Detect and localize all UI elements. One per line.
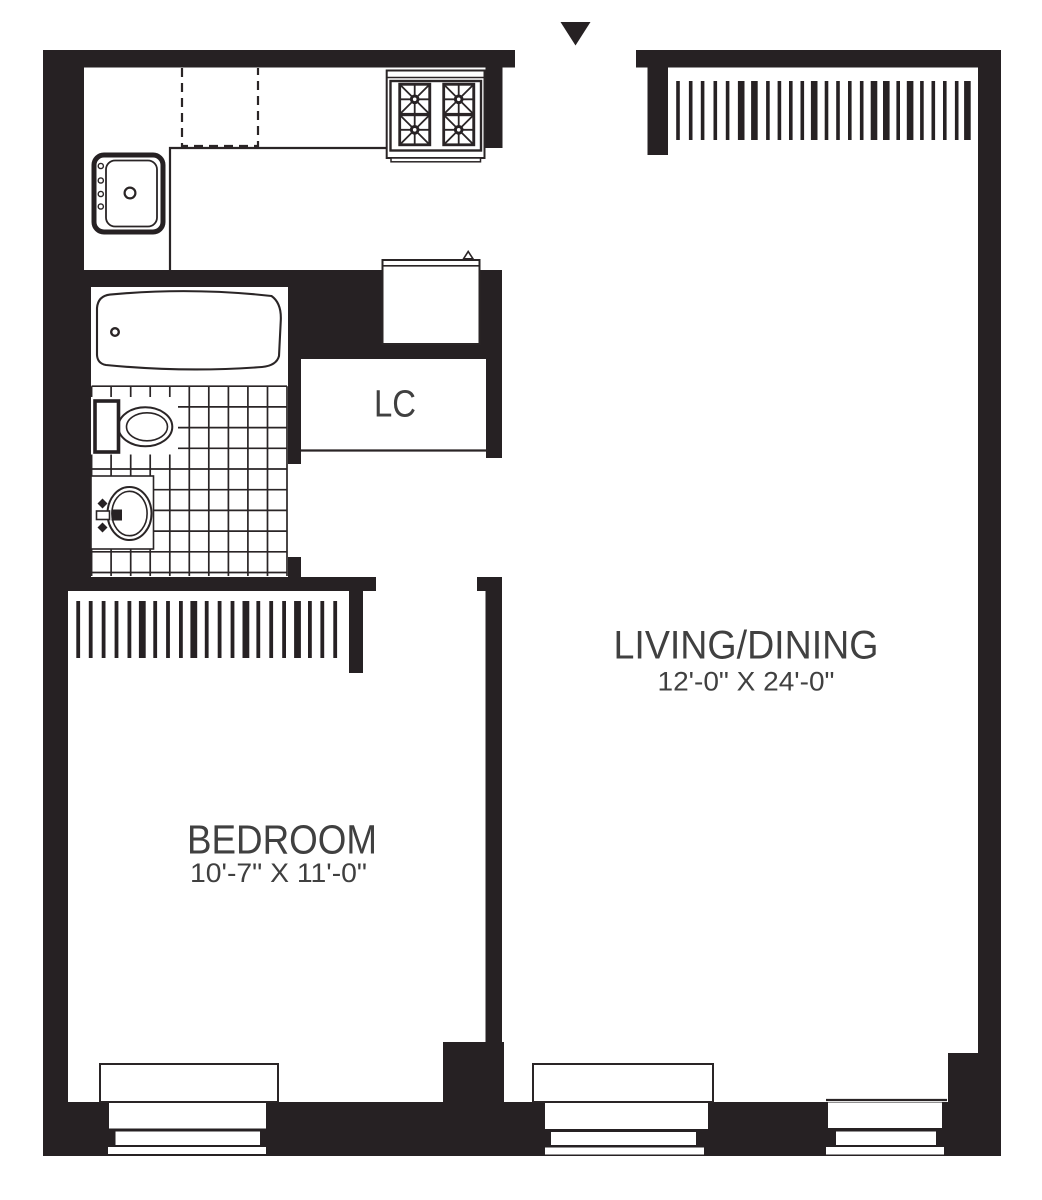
svg-text:LIVING/DINING: LIVING/DINING bbox=[614, 624, 879, 668]
svg-text:BEDROOM: BEDROOM bbox=[187, 817, 377, 863]
svg-text:10'-7" X 11'-0": 10'-7" X 11'-0" bbox=[190, 858, 367, 888]
svg-text:LC: LC bbox=[374, 384, 416, 426]
svg-text:12'-0" X 24'-0": 12'-0" X 24'-0" bbox=[658, 667, 835, 697]
